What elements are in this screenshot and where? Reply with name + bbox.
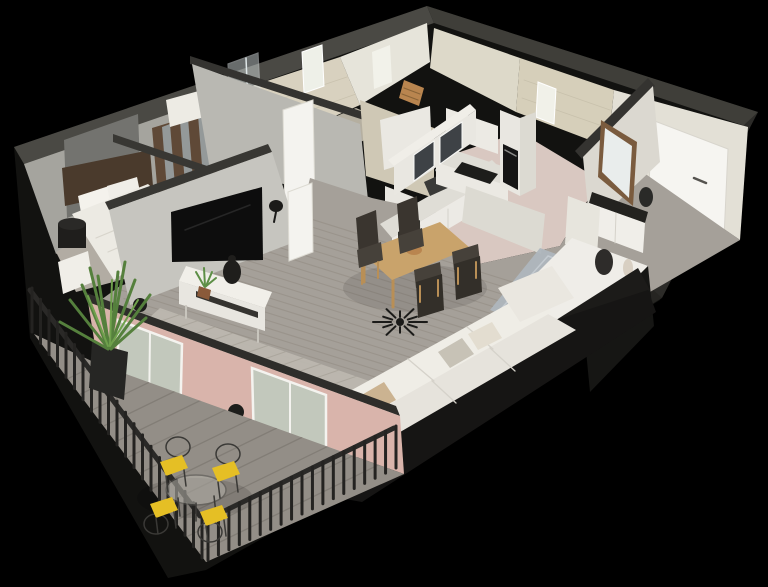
- apartment-floorplan-figure: [0, 0, 768, 587]
- clock-center: [396, 318, 404, 326]
- bedside-lamp-top: [58, 218, 86, 230]
- floorplan-render-stage: [0, 0, 768, 587]
- apartment-floorplan-scene: [0, 0, 768, 587]
- kitchen-window: [536, 82, 556, 124]
- entry-bin: [639, 187, 653, 207]
- bathroom-window: [302, 45, 324, 93]
- console-vase-neck: [228, 255, 236, 263]
- tv-wall-sconce: [269, 200, 283, 212]
- bedroom-door: [288, 183, 313, 261]
- back-wall-small-window: [372, 45, 392, 89]
- console-vase: [223, 260, 241, 284]
- sideboard-vase-dark: [595, 249, 613, 275]
- oven-column-side: [520, 112, 536, 196]
